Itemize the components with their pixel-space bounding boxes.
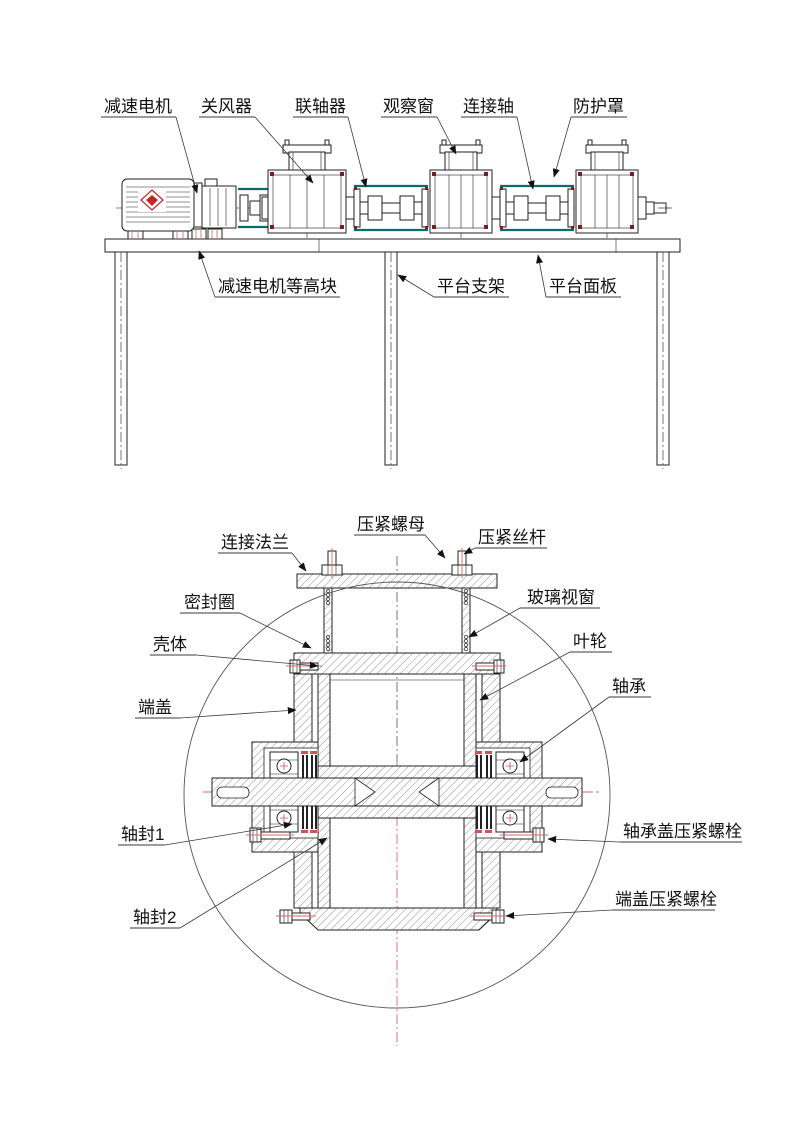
- label-text-observation-window: 观察窗: [383, 97, 434, 116]
- platform-figure: [105, 239, 680, 469]
- label-compression-nut: 压紧螺母: [354, 515, 445, 558]
- left-keyway: [217, 787, 249, 798]
- shaft-guard-2-figure: [500, 186, 574, 230]
- label-end-cover: 端盖: [135, 698, 296, 718]
- label-text-connecting-flange: 连接法兰: [221, 533, 289, 552]
- section-detail-view: [184, 548, 610, 1046]
- technical-drawing: 减速电机 关风器 联轴器 观察窗 连接轴 防护罩 减速电机等高块 平台支架 平台: [0, 0, 800, 1145]
- label-end-cover-bolt: 端盖压紧螺栓: [506, 890, 717, 916]
- gear-motor-figure: [122, 179, 236, 239]
- label-bearing-cover-bolt: 轴承盖压紧螺栓: [548, 822, 742, 842]
- label-text-bearing: 轴承: [612, 677, 646, 696]
- shaft-guard-1-figure: [354, 186, 428, 230]
- label-text-shaft-seal-2: 轴封2: [133, 908, 176, 927]
- label-connecting-flange: 连接法兰: [218, 533, 306, 571]
- label-text-coupling: 联轴器: [295, 97, 346, 116]
- label-text-shaft-seal-1: 轴封1: [121, 825, 164, 844]
- rotary-valve-2-figure: [430, 140, 500, 238]
- label-text-platform-panel: 平台面板: [549, 277, 617, 296]
- rotary-valve-3-figure: [576, 140, 670, 238]
- label-text-seal-ring: 密封圈: [184, 593, 235, 612]
- label-text-motor-riser-block: 减速电机等高块: [218, 277, 337, 296]
- label-text-impeller: 叶轮: [573, 632, 607, 651]
- platform-assembly-view: [105, 140, 680, 469]
- rotary-valve-1-figure: [262, 140, 354, 238]
- label-text-end-cover-bolt: 端盖压紧螺栓: [615, 890, 717, 909]
- label-text-protective-guard: 防护罩: [573, 97, 624, 116]
- label-text-end-cover: 端盖: [138, 698, 172, 717]
- label-seal-ring: 密封圈: [180, 593, 311, 648]
- label-motor-riser-block: 减速电机等高块: [199, 251, 340, 297]
- label-text-connecting-shaft: 连接轴: [463, 97, 514, 116]
- label-text-compression-nut: 压紧螺母: [357, 515, 425, 534]
- label-compression-screw: 压紧丝杆: [464, 528, 547, 554]
- label-text-glass-window: 玻璃视窗: [527, 588, 595, 607]
- right-keyway: [546, 787, 578, 798]
- label-platform-support: 平台支架: [398, 275, 509, 297]
- label-glass-window: 玻璃视窗: [469, 588, 600, 637]
- label-text-platform-support: 平台支架: [437, 277, 505, 296]
- engineering-drawing-page: 减速电机 关风器 联轴器 观察窗 连接轴 防护罩 减速电机等高块 平台支架 平台: [0, 0, 800, 1145]
- label-text-compression-screw: 压紧丝杆: [478, 528, 546, 547]
- label-text-shell: 壳体: [153, 635, 187, 654]
- label-platform-panel: 平台面板: [538, 255, 621, 297]
- label-text-gear-motor: 减速电机: [104, 97, 172, 116]
- label-text-rotary-airlock: 关风器: [201, 97, 252, 116]
- label-text-bearing-cover-bolt: 轴承盖压紧螺栓: [623, 822, 742, 841]
